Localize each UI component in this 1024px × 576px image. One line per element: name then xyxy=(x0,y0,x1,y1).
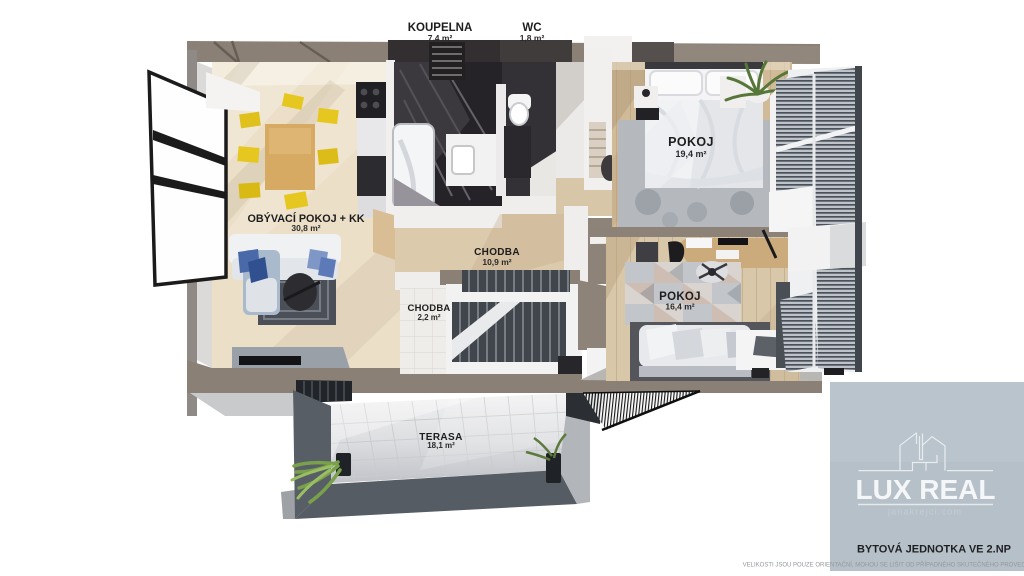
svg-text:1,8 m²: 1,8 m² xyxy=(520,33,545,43)
svg-text:18,1 m²: 18,1 m² xyxy=(427,441,455,450)
svg-text:10,9 m²: 10,9 m² xyxy=(482,257,511,267)
svg-text:janakrejci.com: janakrejci.com xyxy=(887,507,962,517)
svg-text:LUX REAL: LUX REAL xyxy=(856,474,996,505)
svg-text:BYTOVÁ JEDNOTKA VE 2.NP: BYTOVÁ JEDNOTKA VE 2.NP xyxy=(857,543,1011,556)
svg-text:POKOJ: POKOJ xyxy=(668,135,714,149)
svg-text:VELIKOSTI JSOU POUZE ORIENTAČN: VELIKOSTI JSOU POUZE ORIENTAČNÍ, MOHOU S… xyxy=(743,561,1024,569)
svg-text:7,4 m²: 7,4 m² xyxy=(428,33,453,43)
svg-text:2,2 m²: 2,2 m² xyxy=(417,313,440,322)
svg-text:30,8 m²: 30,8 m² xyxy=(291,223,320,233)
svg-text:19,4 m²: 19,4 m² xyxy=(675,149,706,159)
svg-text:16,4 m²: 16,4 m² xyxy=(665,302,694,312)
